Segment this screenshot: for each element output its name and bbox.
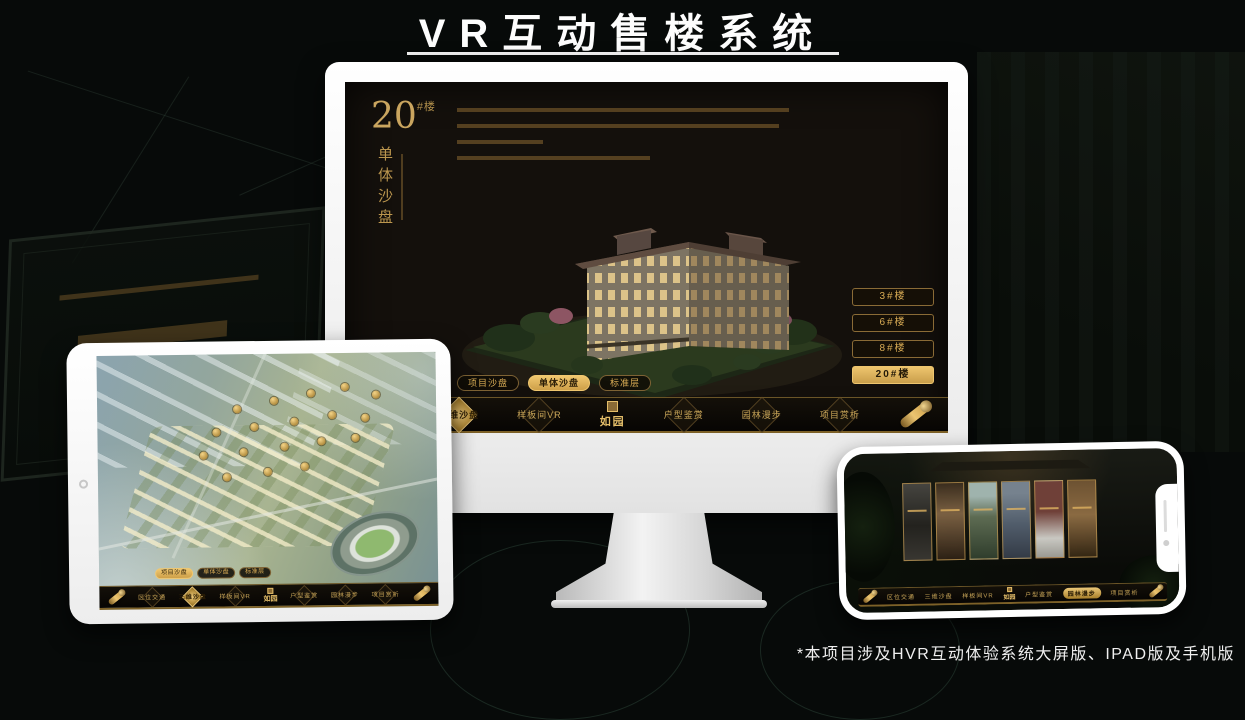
phone-speaker bbox=[1163, 500, 1167, 532]
gallery-card-kitchen[interactable] bbox=[935, 482, 965, 561]
scroll-menu-icon-left[interactable] bbox=[862, 590, 877, 603]
nav-item-floorplan-gallery[interactable]: 户型鉴赏 bbox=[664, 408, 704, 421]
tablet-tab-project-sandbox-selected[interactable]: 项目沙盘 bbox=[155, 568, 193, 579]
floor-button-8[interactable]: 8#楼 bbox=[852, 340, 934, 358]
building-badge[interactable] bbox=[233, 405, 241, 413]
floor-button-group: 3#楼 6#楼 8#楼 20#楼 bbox=[852, 288, 934, 384]
tab-standard-floor[interactable]: 标准层 bbox=[599, 375, 651, 391]
nav-item-location-traffic[interactable]: 区位交通 bbox=[138, 592, 166, 601]
nav-item-3d-sandbox-selected[interactable]: 三维沙盘 bbox=[179, 592, 207, 601]
scroll-menu-icon[interactable] bbox=[898, 400, 931, 429]
building-badge[interactable] bbox=[250, 423, 258, 431]
scroll-menu-icon-left[interactable] bbox=[108, 589, 126, 605]
nav-item-project-showcase[interactable]: 项目赏析 bbox=[372, 589, 400, 598]
brand-seal-icon bbox=[607, 401, 618, 412]
nav-item-garden-walk[interactable]: 园林漫步 bbox=[742, 408, 782, 421]
nav-item-garden-walk-selected[interactable]: 园林漫步 bbox=[1063, 587, 1101, 599]
tablet-tab-single-sandbox[interactable]: 单体沙盘 bbox=[197, 567, 235, 578]
tablet-home-button[interactable] bbox=[79, 479, 88, 488]
monitor-stand-base bbox=[551, 600, 767, 608]
title-underline bbox=[407, 52, 839, 55]
nav-item-garden-walk[interactable]: 园林漫步 bbox=[331, 590, 359, 599]
building-badge[interactable] bbox=[213, 428, 221, 436]
bg-certificate-text-line bbox=[59, 275, 258, 301]
bg-road-line bbox=[28, 71, 333, 171]
tablet-tab-standard-floor[interactable]: 标准层 bbox=[239, 567, 271, 578]
tab-project-sandbox[interactable]: 项目沙盘 bbox=[457, 375, 519, 391]
brand-logo: 如园 bbox=[263, 587, 277, 603]
building-badge[interactable] bbox=[371, 391, 379, 399]
gallery-card-garden[interactable] bbox=[968, 481, 998, 560]
nav-item-showroom-vr[interactable]: 样板间VR bbox=[517, 408, 562, 421]
gallery-card-building[interactable] bbox=[1001, 481, 1031, 560]
bg-road-line bbox=[72, 76, 189, 263]
description-line bbox=[457, 124, 779, 128]
phone-navbar: 区位交通 三维沙盘 样板间VR 如园 户型鉴赏 园林漫步 项目赏析 bbox=[858, 582, 1167, 607]
scroll-menu-icon-right[interactable] bbox=[412, 586, 430, 602]
building-badge[interactable] bbox=[328, 411, 336, 419]
floor-button-20-selected[interactable]: 20#楼 bbox=[852, 366, 934, 384]
tab-single-sandbox-selected[interactable]: 单体沙盘 bbox=[528, 375, 590, 391]
brand-logo: 如园 bbox=[600, 401, 626, 429]
phone-app-screen: 区位交通 三维沙盘 样板间VR 如园 户型鉴赏 园林漫步 项目赏析 bbox=[844, 448, 1180, 613]
building-badge[interactable] bbox=[290, 417, 298, 425]
tablet-navbar: 区位交通 三维沙盘 样板间VR 如园 户型鉴赏 园林漫步 项目赏析 bbox=[99, 582, 438, 610]
nav-item-project-showcase[interactable]: 项目赏析 bbox=[820, 408, 860, 421]
bg-photo-right bbox=[977, 52, 1245, 452]
heading-subtitle-vertical: 单体沙盘 bbox=[375, 146, 396, 230]
tablet-app-screen: 项目沙盘 单体沙盘 标准层 区位交通 三维沙盘 样板间VR 如园 户型鉴赏 园林… bbox=[96, 352, 438, 610]
tablet-mockup: 项目沙盘 单体沙盘 标准层 区位交通 三维沙盘 样板间VR 如园 户型鉴赏 园林… bbox=[66, 339, 453, 625]
pavilion-roof-silhouette bbox=[930, 459, 1090, 471]
phone-notch bbox=[1155, 483, 1179, 571]
nav-item-floorplan-gallery[interactable]: 户型鉴赏 bbox=[1025, 589, 1053, 599]
panorama-gallery bbox=[902, 479, 1097, 561]
building-3d-render bbox=[437, 150, 857, 405]
footnote-text: *本项目涉及HVR互动体验系统大屏版、IPAD版及手机版 bbox=[797, 640, 1235, 664]
scroll-menu-icon-right[interactable] bbox=[1148, 585, 1163, 598]
description-line bbox=[457, 140, 543, 144]
brand-logo: 如园 bbox=[1003, 587, 1015, 601]
nav-item-showroom-vr[interactable]: 样板间VR bbox=[962, 590, 994, 600]
nav-item-location-traffic[interactable]: 区位交通 bbox=[887, 591, 915, 601]
plant-silhouette bbox=[844, 471, 896, 582]
nav-item-3d-sandbox[interactable]: 三维沙盘 bbox=[925, 591, 953, 601]
gallery-card-shelves[interactable] bbox=[1067, 479, 1097, 558]
phone-camera-icon bbox=[1163, 539, 1169, 545]
tablet-view-tab-group: 项目沙盘 单体沙盘 标准层 bbox=[155, 567, 271, 579]
gallery-card-interior[interactable] bbox=[902, 483, 932, 562]
view-tab-group: 项目沙盘 单体沙盘 标准层 bbox=[457, 375, 651, 391]
gallery-card-facade[interactable] bbox=[1034, 480, 1064, 559]
building-number: 20 bbox=[371, 96, 417, 137]
floor-button-6[interactable]: 6#楼 bbox=[852, 314, 934, 332]
description-line bbox=[457, 108, 789, 112]
phone-mockup: 区位交通 三维沙盘 样板间VR 如园 户型鉴赏 园林漫步 项目赏析 bbox=[836, 441, 1186, 621]
nav-item-showroom-vr[interactable]: 样板间VR bbox=[219, 591, 250, 600]
floor-button-3[interactable]: 3#楼 bbox=[852, 288, 934, 306]
heading-subtitle-english-line bbox=[401, 154, 403, 220]
monitor-stand bbox=[556, 513, 762, 605]
building-number-suffix: #楼 bbox=[417, 101, 436, 113]
nav-item-floorplan-gallery[interactable]: 户型鉴赏 bbox=[290, 590, 318, 599]
building-badge[interactable] bbox=[199, 451, 207, 459]
building-heading: 20#楼 bbox=[371, 98, 436, 135]
page-title: VR互动售楼系统 bbox=[0, 1, 1245, 59]
building-badge[interactable] bbox=[281, 443, 289, 451]
building-badge[interactable] bbox=[307, 389, 315, 397]
nav-item-project-showcase[interactable]: 项目赏析 bbox=[1110, 587, 1138, 597]
